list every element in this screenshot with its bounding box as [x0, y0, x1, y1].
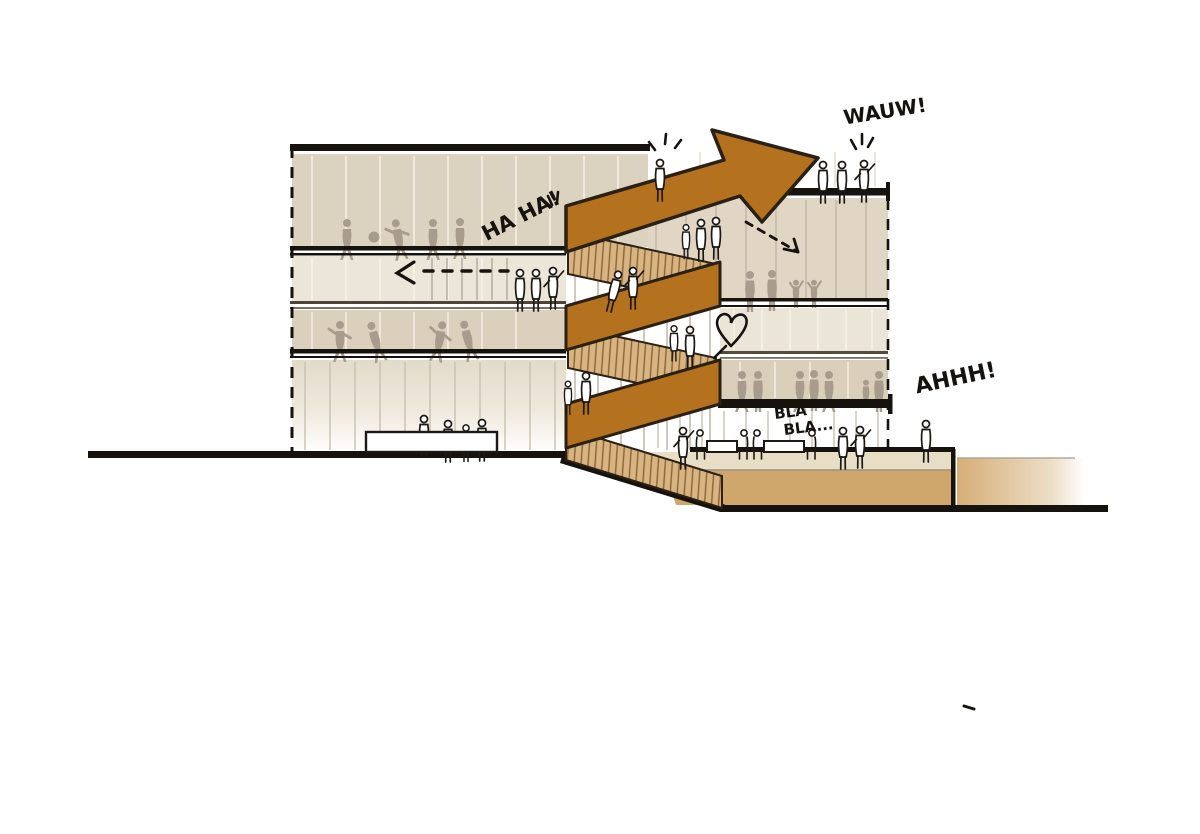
band-cream-left — [292, 256, 566, 302]
annotation-wauw: WAUW! — [842, 93, 928, 130]
slab-left-1b — [290, 253, 566, 256]
slab-left-2b — [290, 307, 566, 309]
person-rooftop — [838, 162, 847, 204]
slab-right-1b — [720, 305, 888, 307]
slab-right-2 — [720, 351, 888, 354]
plaza-right-edge — [951, 449, 956, 507]
person-rooftop — [819, 162, 828, 204]
reception-counter — [366, 432, 497, 452]
marks-arrow-figure — [649, 134, 681, 150]
slab-roof-endcap — [886, 182, 890, 201]
ball-icon — [369, 232, 380, 243]
marks-rooftop — [851, 134, 873, 149]
slab-right-1 — [720, 298, 888, 302]
slab-right-2b — [720, 357, 888, 359]
cafe-table — [764, 441, 804, 452]
slab-left-2 — [290, 301, 566, 304]
silhouette-person — [767, 270, 776, 311]
cafe-table — [707, 441, 737, 452]
ground-fade-right — [957, 458, 1085, 505]
person-floor2 — [532, 270, 541, 312]
sketch-canvas: WAUW! HA HA! AHHH! BLA BLA... — [0, 0, 1200, 834]
slab-left-3b — [290, 356, 566, 358]
slab-left-3 — [290, 349, 566, 354]
stray-mark — [964, 706, 974, 709]
slab-left-1 — [290, 246, 566, 251]
section-drawing: WAUW! HA HA! AHHH! BLA BLA... — [0, 0, 1200, 834]
annotation-ahhh: AHHH! — [913, 358, 999, 400]
slab-roof-left — [290, 144, 650, 151]
person-floor2 — [516, 270, 525, 312]
